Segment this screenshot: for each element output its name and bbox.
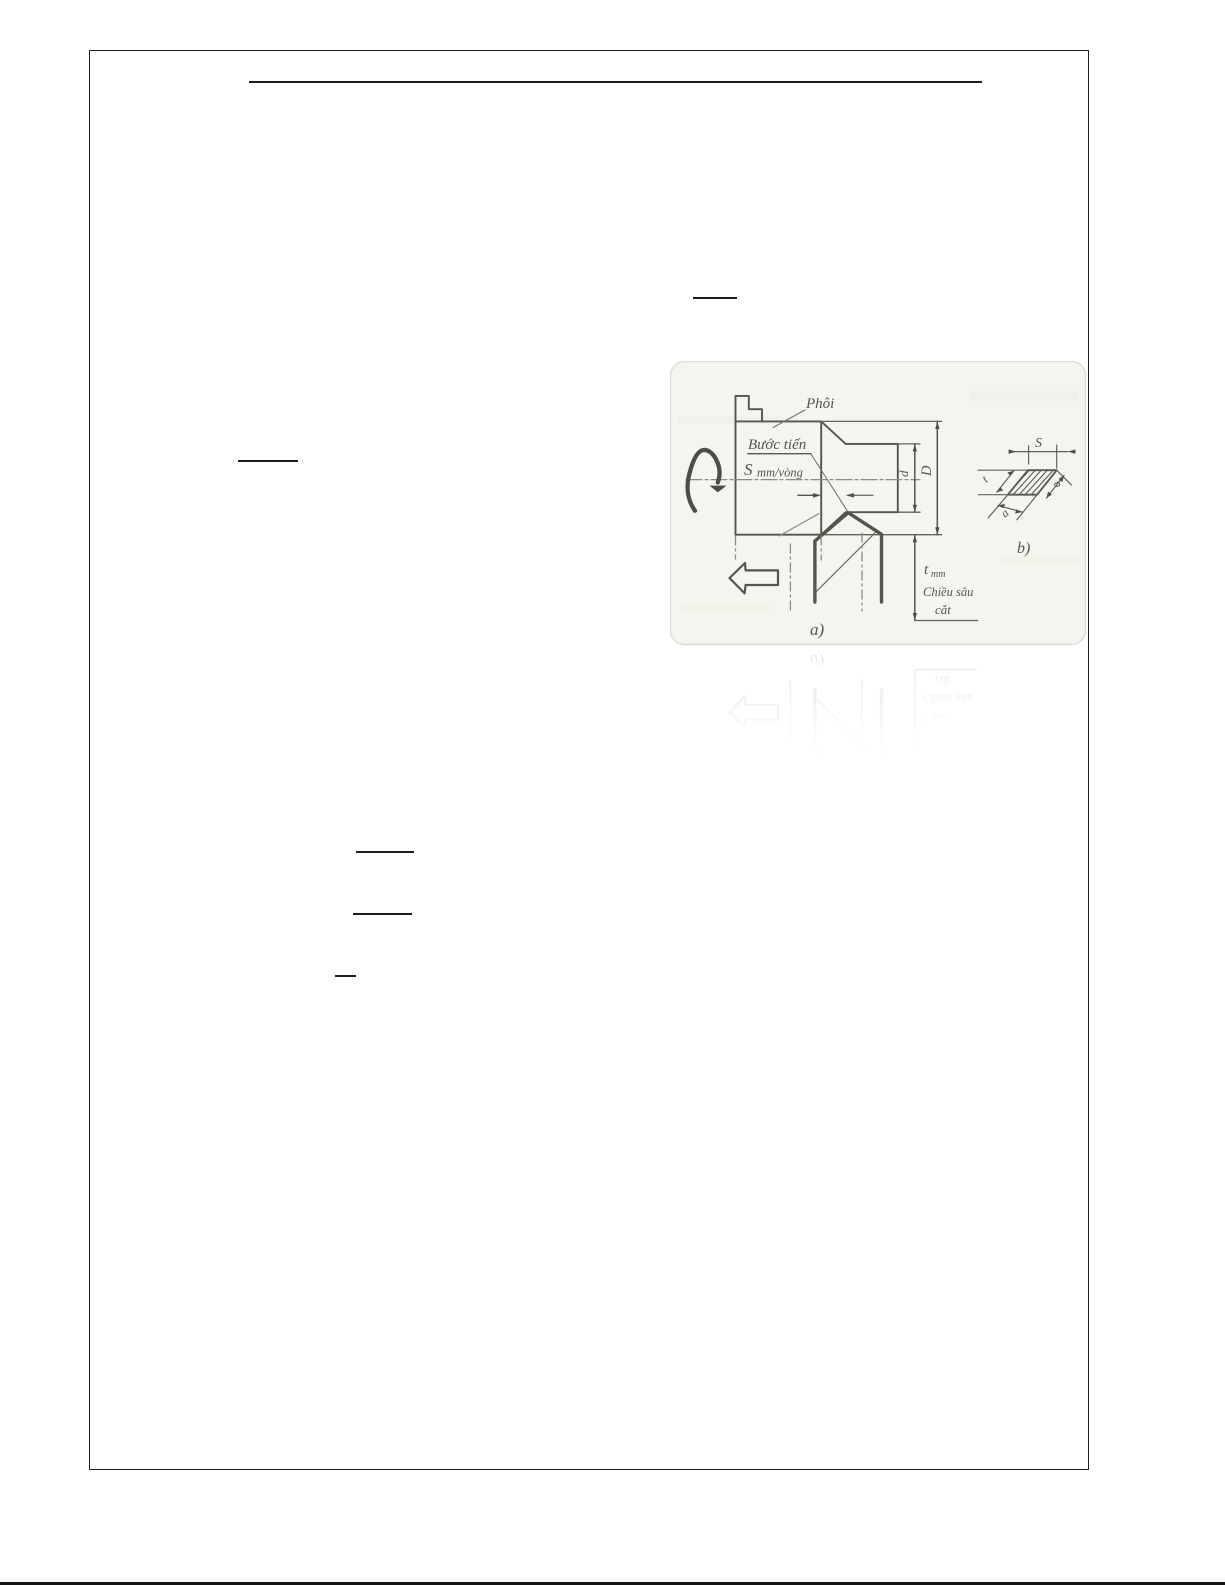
svg-text:t: t <box>924 712 929 728</box>
svg-text:a): a) <box>810 651 825 670</box>
svg-text:d: d <box>896 470 911 477</box>
svg-text:S: S <box>1035 436 1042 451</box>
svg-text:Bước tiến: Bước tiến <box>748 437 806 453</box>
svg-text:mm: mm <box>931 569 945 580</box>
svg-text:mm: mm <box>931 710 945 721</box>
svg-text:b): b) <box>1017 540 1030 557</box>
svg-text:Phôi: Phôi <box>805 396 834 412</box>
svg-text:D: D <box>919 465 935 477</box>
svg-text:Chiều sâu: Chiều sâu <box>923 691 973 705</box>
svg-text:S: S <box>744 460 753 479</box>
svg-text:mm/vòng: mm/vòng <box>757 466 803 480</box>
svg-text:Chiều sâu: Chiều sâu <box>923 585 973 599</box>
svg-text:cắt: cắt <box>935 602 951 617</box>
svg-text:cắt: cắt <box>935 673 951 688</box>
svg-text:a): a) <box>810 620 825 639</box>
